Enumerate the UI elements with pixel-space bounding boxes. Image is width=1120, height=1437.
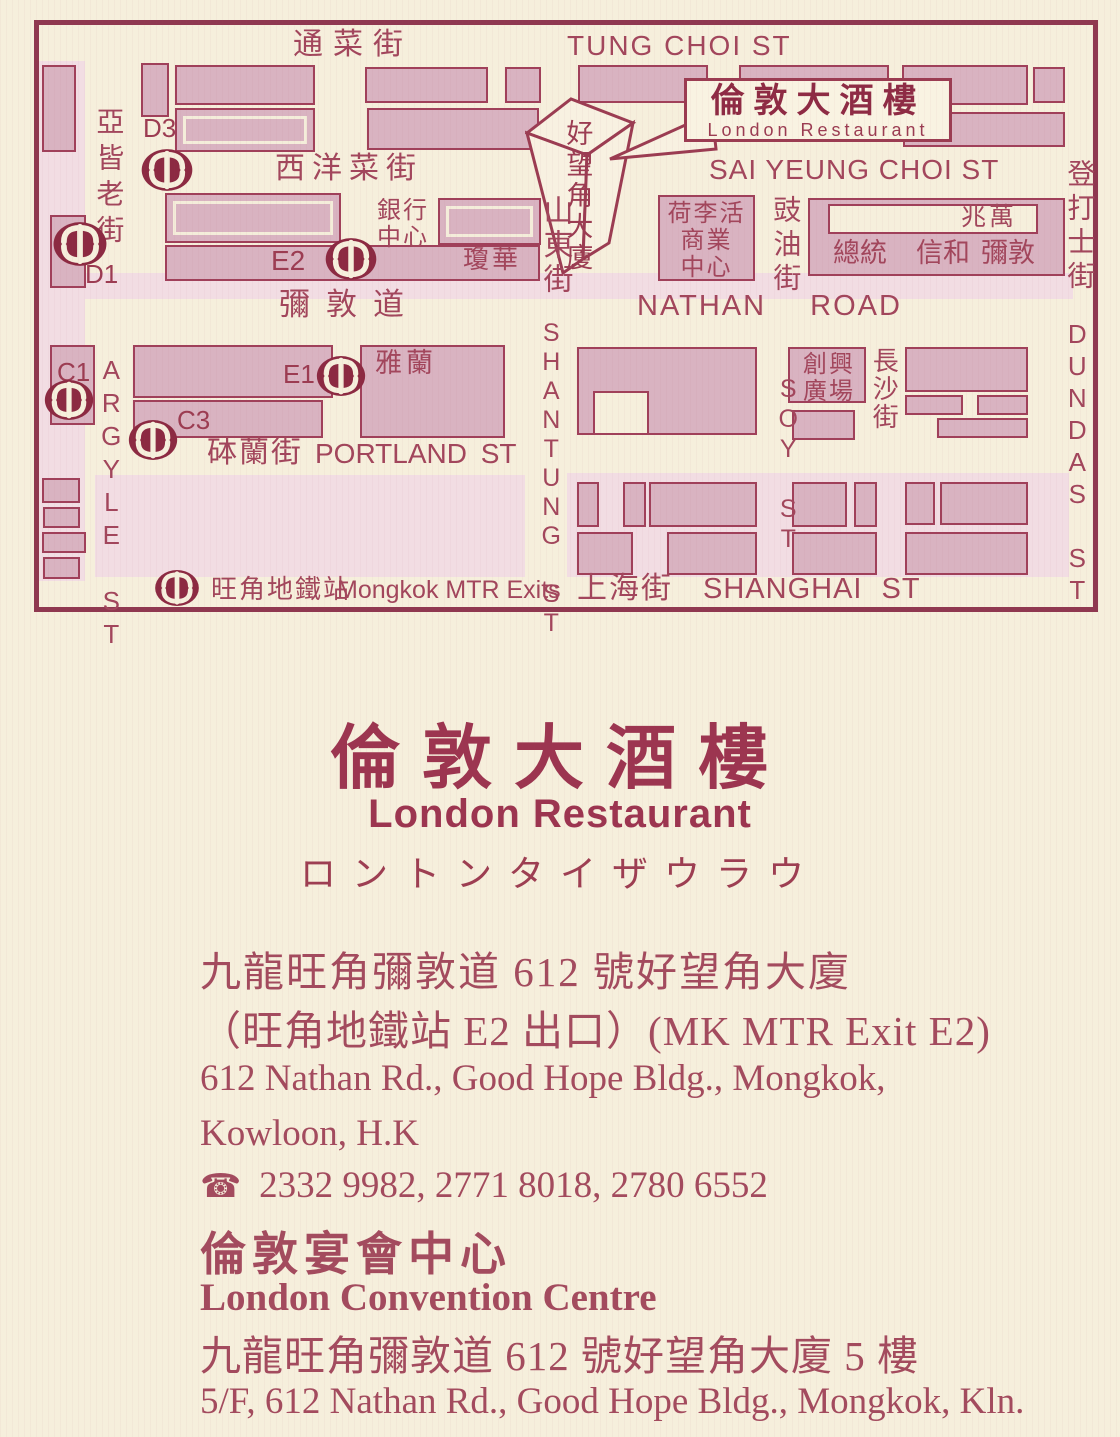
legend-label-en: Mongkok MTR Exits	[337, 577, 561, 603]
mtr-logo-icon	[315, 355, 367, 402]
mtr-logo-icon	[51, 221, 109, 272]
map-restaurant-sign: 倫敦大酒樓 London Restaurant	[684, 78, 952, 142]
address-line-en-2: Kowloon, H.K	[200, 1112, 419, 1155]
street-label-tung-choi-zh: 通菜街	[293, 29, 413, 61]
map-building	[577, 532, 633, 575]
mtr-logo-icon	[323, 237, 379, 286]
building-label-sino: 信和	[916, 239, 970, 267]
map-building	[623, 482, 646, 527]
street-label-argyle-en: ARGYLE ST	[97, 355, 124, 652]
building-label-hollywood: 荷李活 商業 中心	[659, 200, 754, 281]
telephone-icon: ☎	[200, 1166, 241, 1205]
street-label-tung-choi-en: TUNG CHOI ST	[567, 31, 792, 60]
mtr-logo-icon	[41, 379, 97, 426]
map-building	[42, 532, 86, 553]
map-building	[593, 391, 649, 435]
map-building	[1033, 67, 1065, 103]
restaurant-title-en: London Restaurant	[0, 792, 1120, 837]
map-building	[43, 507, 80, 528]
mtr-logo-icon	[125, 419, 181, 466]
hollywood-line3: 中心	[659, 254, 754, 281]
convention-centre-address-en: 5/F, 612 Nathan Rd., Good Hope Bldg., Mo…	[200, 1380, 1024, 1423]
street-label-sai-yeung-choi-en: SAI YEUNG CHOI ST	[709, 155, 999, 184]
map-sign-name-zh: 倫敦大酒樓	[687, 82, 949, 120]
street-label-portland-en: PORTLAND ST	[315, 439, 517, 468]
address-line-mtr-exit: （旺角地鐵站 E2 出口）(MK MTR Exit E2)	[200, 997, 991, 1057]
restaurant-title-katakana: ロントンタイザウラウ	[0, 845, 1120, 897]
map-building	[905, 532, 1028, 575]
map-building	[365, 67, 488, 103]
map-building	[667, 532, 757, 575]
business-card: 通菜街 TUNG CHOI ST 西洋菜街 SAI YEUNG CHOI ST …	[0, 0, 1120, 1437]
map-building	[649, 482, 757, 527]
map-building	[854, 482, 877, 527]
building-label-siu-man: 兆萬	[961, 204, 1017, 230]
building-label-president: 總統	[833, 239, 887, 267]
street-label-sai-yeung-choi-zh: 西洋菜街	[275, 153, 423, 185]
map-building	[905, 395, 963, 415]
map-building	[977, 395, 1028, 415]
street-label-shanghai-en: SHANGHAI ST	[703, 574, 921, 604]
building-label-grand-tower: 雅蘭	[375, 349, 437, 377]
mtr-logo-icon	[139, 148, 195, 197]
building-label-king-wah: 瓊華	[463, 246, 521, 273]
street-label-shanghai-zh: 上海街	[577, 573, 673, 605]
building-label-nathan-bldg: 彌敦	[981, 239, 1035, 267]
hollywood-line2: 商業	[659, 227, 754, 254]
map-building	[43, 557, 80, 579]
map-building	[175, 65, 315, 105]
restaurant-title-zh: 倫敦大酒樓	[0, 702, 1120, 803]
legend-label-zh: 旺角地鐵站	[211, 576, 351, 603]
map-building	[141, 63, 169, 117]
map-building	[905, 347, 1028, 392]
mtr-logo-icon	[153, 569, 201, 612]
phone-numbers: 2332 9982, 2771 8018, 2780 6552	[259, 1165, 768, 1206]
map-building	[940, 482, 1028, 525]
convention-centre-address-zh: 九龍旺角彌敦道 612 號好望角大廈 5 樓	[200, 1322, 919, 1382]
street-label-cheung-sha-zh: 長沙街	[870, 347, 897, 431]
mtr-exit-label-e2: E2	[271, 245, 305, 277]
street-label-dundas-zh: 登打士街	[1065, 159, 1094, 295]
chong-hing-line1: 創興	[791, 351, 867, 378]
address-line-en-1: 612 Nathan Rd., Good Hope Bldg., Mongkok…	[200, 1057, 886, 1100]
street-label-soy-zh: 豉油街	[771, 195, 800, 297]
mtr-exit-label-d3: D3	[143, 113, 176, 144]
mtr-exit-label-c3: C3	[177, 405, 210, 436]
road-tint	[95, 475, 525, 577]
map-building	[42, 65, 76, 152]
bank-centre-line1: 銀行	[367, 197, 439, 224]
convention-centre-title-en: London Convention Centre	[200, 1275, 657, 1320]
street-label-portland-zh: 砵蘭街	[207, 437, 303, 469]
street-label-dundas-en: DUNDAS ST	[1063, 319, 1090, 607]
map-building	[175, 108, 315, 152]
hollywood-line1: 荷李活	[659, 200, 754, 227]
map-building	[792, 532, 877, 575]
map-building	[165, 193, 341, 243]
street-label-nathan-zh: 彌敦道	[279, 289, 420, 322]
map-sign-name-en: London Restaurant	[687, 120, 949, 140]
building-label-good-hope: 好望角大廈	[563, 119, 591, 274]
phone-line: ☎2332 9982, 2771 8018, 2780 6552	[200, 1164, 768, 1207]
map-building	[42, 478, 80, 503]
address-line-zh: 九龍旺角彌敦道 612 號好望角大廈	[200, 938, 851, 998]
building-label-chong-hing: 創興 廣場	[791, 351, 867, 405]
mtr-exit-label-e1: E1	[283, 359, 315, 390]
mongkok-map: 通菜街 TUNG CHOI ST 西洋菜街 SAI YEUNG CHOI ST …	[34, 20, 1098, 612]
map-building	[905, 482, 935, 525]
map-building	[367, 108, 539, 150]
map-building	[577, 482, 599, 527]
map-building	[937, 418, 1028, 438]
chong-hing-line2: 廣場	[791, 378, 867, 405]
